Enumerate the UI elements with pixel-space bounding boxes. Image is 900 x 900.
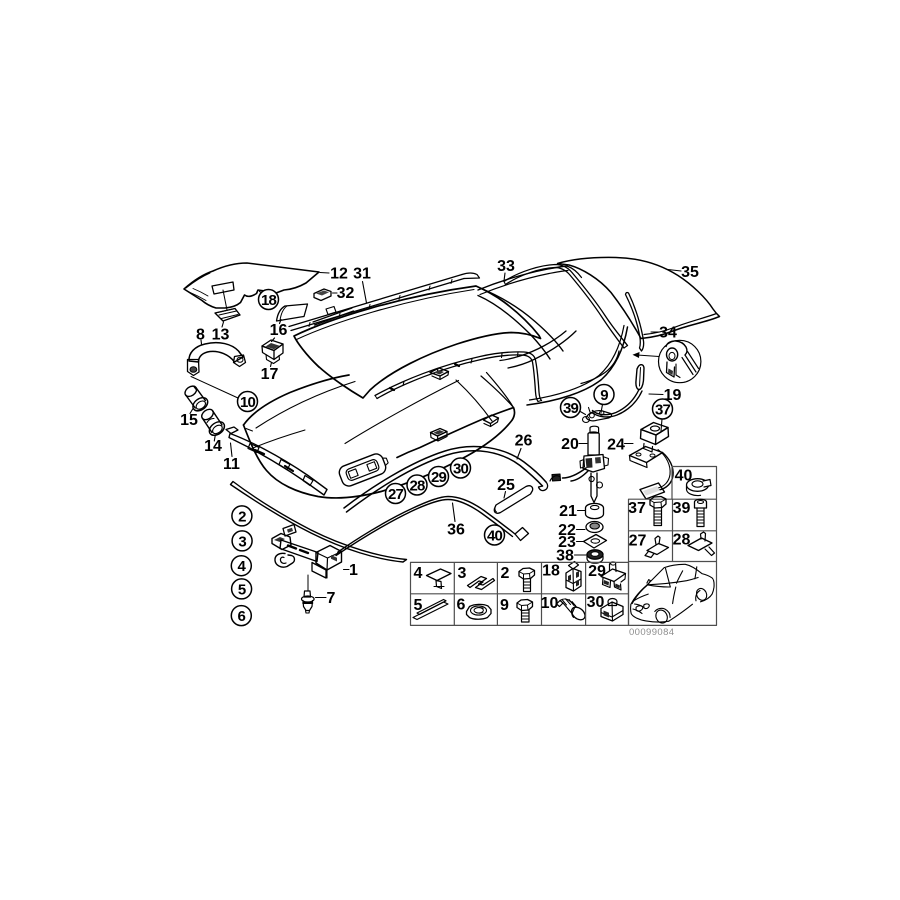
svg-text:35: 35 — [681, 264, 699, 281]
svg-text:10: 10 — [240, 394, 256, 411]
svg-text:6: 6 — [457, 597, 466, 614]
svg-text:7: 7 — [327, 590, 336, 607]
svg-text:40: 40 — [675, 468, 693, 485]
svg-text:36: 36 — [447, 522, 465, 539]
svg-text:4: 4 — [414, 565, 423, 582]
svg-text:30: 30 — [453, 460, 469, 477]
svg-text:8: 8 — [196, 327, 205, 344]
svg-text:37: 37 — [628, 500, 646, 517]
svg-text:16: 16 — [270, 322, 288, 339]
svg-text:40: 40 — [487, 527, 503, 544]
svg-text:29: 29 — [431, 469, 447, 486]
svg-text:5: 5 — [414, 597, 423, 614]
svg-text:3: 3 — [238, 533, 246, 550]
svg-text:11: 11 — [223, 456, 240, 473]
svg-text:28: 28 — [673, 532, 691, 549]
svg-text:6: 6 — [238, 608, 246, 625]
svg-text:26: 26 — [515, 433, 533, 450]
svg-text:39: 39 — [673, 500, 691, 517]
svg-text:3: 3 — [458, 565, 467, 582]
svg-text:30: 30 — [587, 594, 605, 611]
svg-text:14: 14 — [204, 438, 222, 455]
svg-text:31: 31 — [353, 266, 371, 283]
svg-text:33: 33 — [497, 258, 515, 275]
svg-text:29: 29 — [588, 563, 606, 580]
svg-text:2: 2 — [501, 565, 510, 582]
svg-text:5: 5 — [238, 581, 246, 598]
svg-text:28: 28 — [409, 477, 425, 494]
svg-text:10: 10 — [541, 595, 559, 612]
svg-text:12: 12 — [330, 266, 348, 283]
svg-text:9: 9 — [500, 597, 509, 614]
svg-text:24: 24 — [607, 437, 625, 454]
svg-text:27: 27 — [388, 486, 404, 503]
svg-text:32: 32 — [337, 285, 355, 302]
svg-text:18: 18 — [542, 563, 560, 580]
svg-text:00099084: 00099084 — [629, 627, 674, 638]
svg-text:25: 25 — [497, 477, 515, 494]
svg-text:19: 19 — [664, 387, 682, 404]
svg-text:1: 1 — [349, 562, 358, 579]
svg-text:15: 15 — [180, 412, 198, 429]
svg-text:13: 13 — [212, 327, 230, 344]
svg-text:21: 21 — [559, 503, 577, 520]
svg-text:20: 20 — [561, 436, 579, 453]
svg-text:18: 18 — [261, 292, 277, 309]
svg-text:27: 27 — [629, 533, 647, 550]
svg-text:34: 34 — [659, 325, 677, 342]
svg-text:17: 17 — [261, 366, 279, 383]
svg-text:9: 9 — [600, 387, 608, 404]
svg-text:39: 39 — [563, 400, 579, 417]
svg-text:2: 2 — [238, 508, 246, 525]
